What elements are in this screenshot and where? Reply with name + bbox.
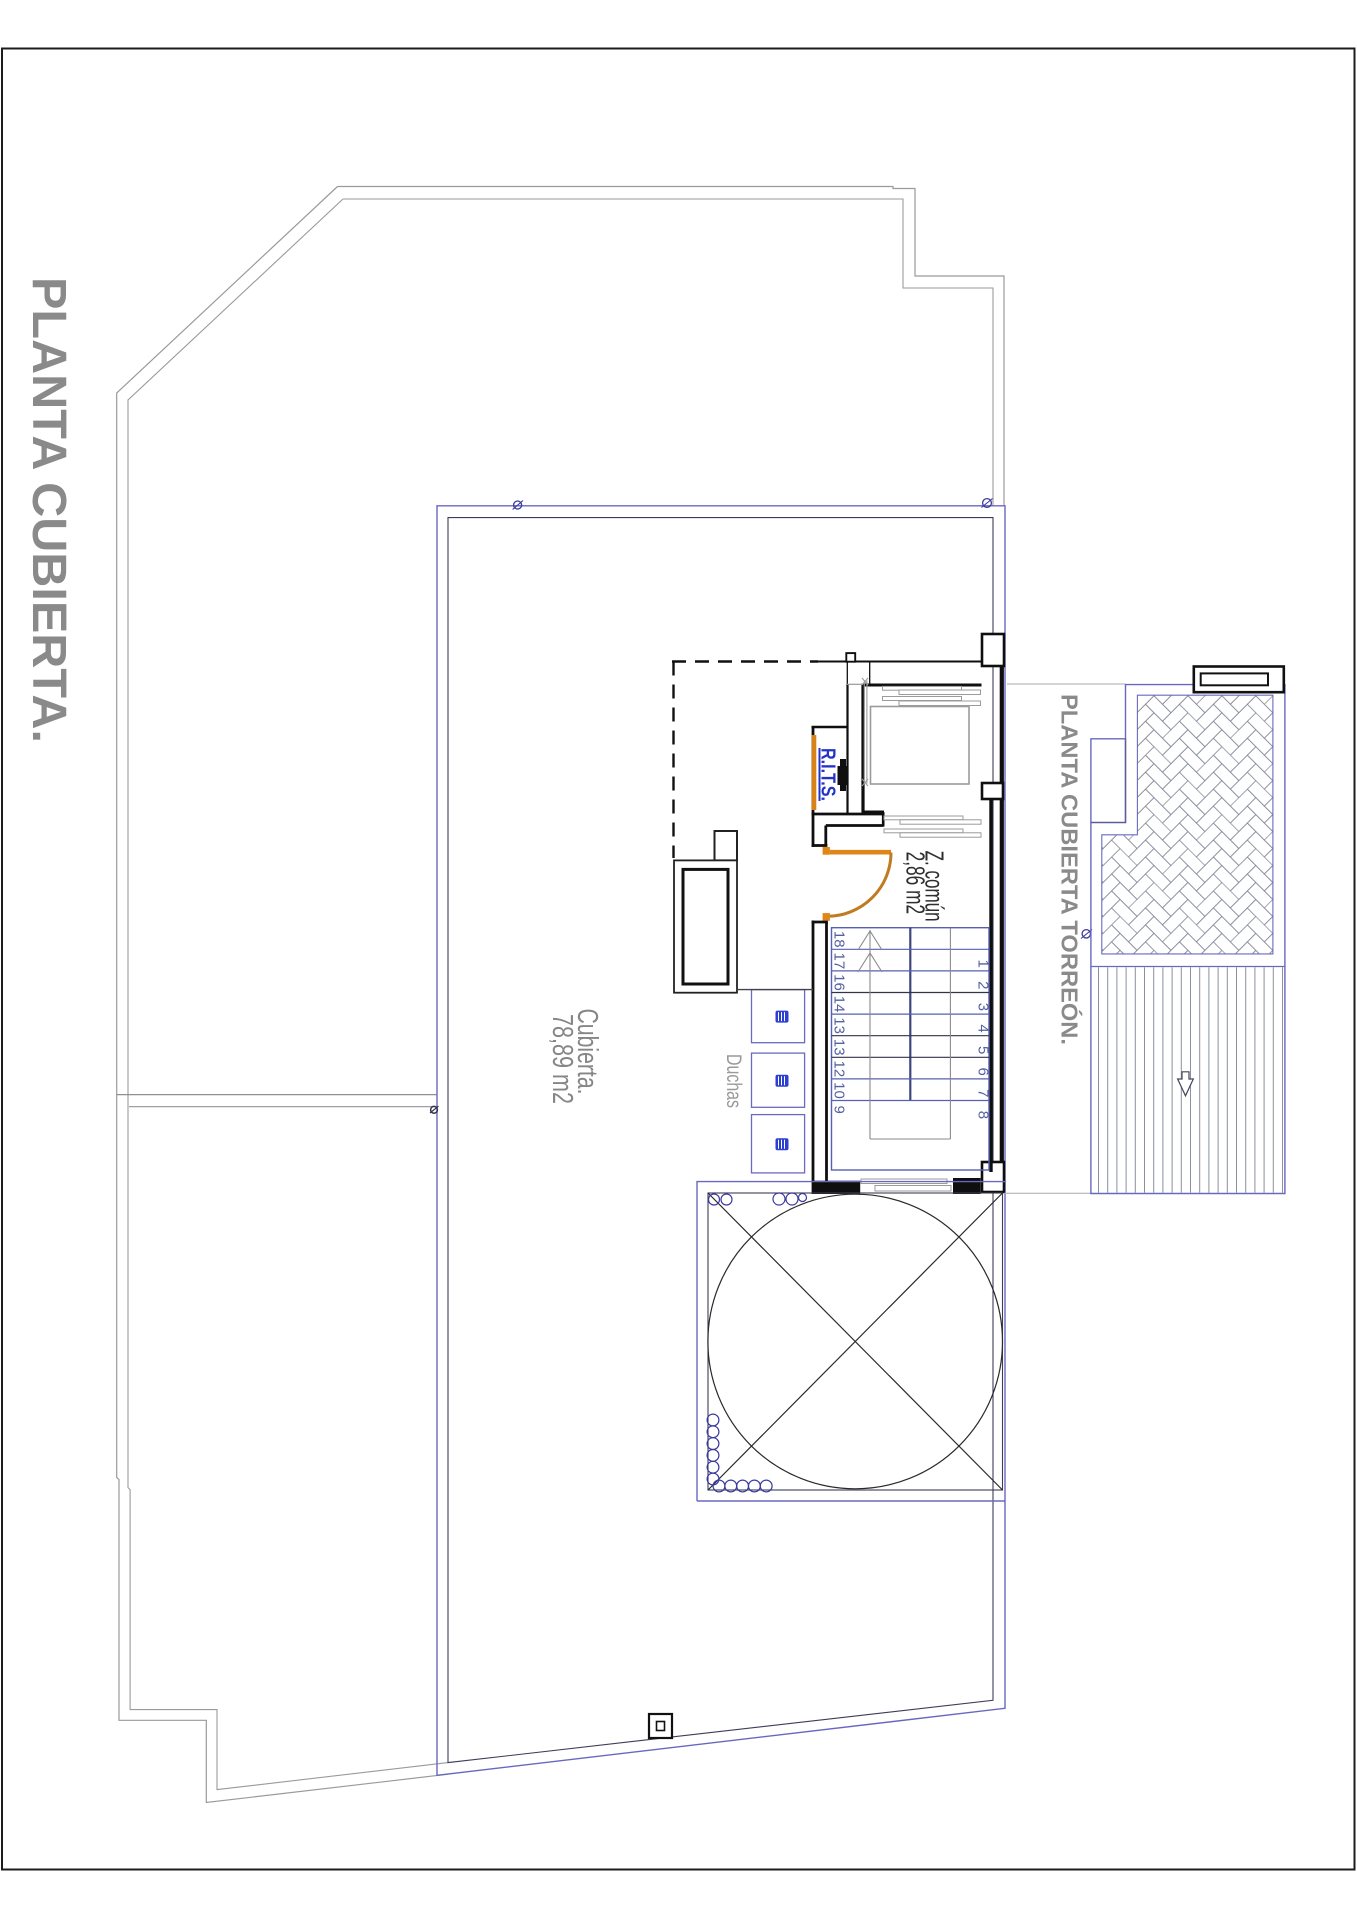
svg-text:7: 7 bbox=[975, 1089, 992, 1097]
svg-text:2: 2 bbox=[975, 981, 992, 989]
svg-text:18: 18 bbox=[831, 931, 848, 948]
svg-text:1: 1 bbox=[975, 960, 992, 968]
svg-text:10: 10 bbox=[831, 1082, 848, 1099]
svg-text:12: 12 bbox=[831, 1061, 848, 1078]
svg-text:16: 16 bbox=[831, 974, 848, 991]
svg-text:78,89 m2: 78,89 m2 bbox=[546, 1014, 578, 1104]
svg-text:2,86 m2: 2,86 m2 bbox=[901, 852, 931, 915]
svg-text:R.I.T.S.: R.I.T.S. bbox=[817, 748, 839, 801]
svg-text:13: 13 bbox=[831, 1039, 848, 1056]
svg-text:PLANTA CUBIERTA.: PLANTA CUBIERTA. bbox=[22, 277, 75, 743]
svg-text:4: 4 bbox=[975, 1024, 992, 1032]
svg-text:3: 3 bbox=[975, 1003, 992, 1011]
svg-text:17: 17 bbox=[831, 953, 848, 970]
svg-text:14: 14 bbox=[831, 996, 848, 1013]
svg-text:13: 13 bbox=[831, 1017, 848, 1034]
svg-text:6: 6 bbox=[975, 1068, 992, 1076]
svg-text:8: 8 bbox=[975, 1111, 992, 1119]
svg-text:PLANTA CUBIERTA TORREÓN.: PLANTA CUBIERTA TORREÓN. bbox=[1057, 694, 1084, 1045]
svg-text:5: 5 bbox=[975, 1046, 992, 1054]
svg-text:9: 9 bbox=[831, 1106, 848, 1114]
svg-text:Duchas: Duchas bbox=[722, 1054, 745, 1108]
